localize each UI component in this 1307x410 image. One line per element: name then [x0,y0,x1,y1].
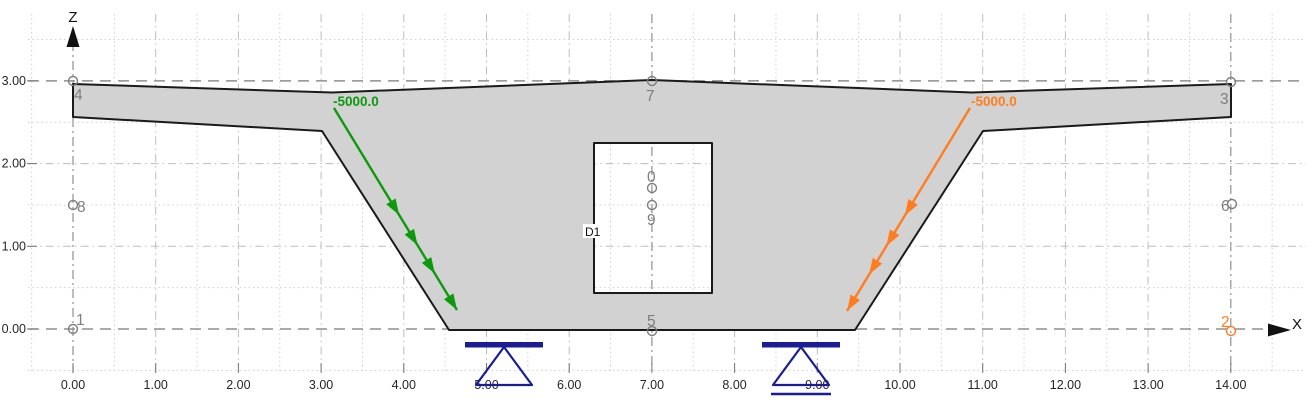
z-axis-label: Z [68,9,77,26]
x-tick-label: 13.00 [1132,378,1163,392]
node-number-label: 2 [1221,314,1230,331]
z-tick-label: 3.00 [2,74,26,88]
z-axis-arrow-icon [67,26,80,47]
model-viewport: 0.001.002.003.004.005.006.007.008.009.00… [0,0,1307,410]
node-3[interactable]: 3 [1220,78,1236,109]
x-tick-label: 12.00 [1050,378,1081,392]
model-canvas: 0.001.002.003.004.005.006.007.008.009.00… [0,0,1307,410]
x-tick-label: 7.00 [640,378,664,392]
node-number-label: 8 [77,199,86,216]
x-tick-label: 1.00 [144,378,168,392]
node-number-label: 6 [1221,198,1230,215]
node-number-label: 4 [74,87,83,104]
node-number-label: 7 [646,88,655,105]
x-axis-arrow-icon [1268,324,1291,337]
load-value-label: -5000.0 [333,94,379,109]
node-number-label: 0 [647,169,656,186]
x-tick-label: 3.00 [309,378,333,392]
node-6[interactable]: 6 [1221,198,1237,215]
node-number-label: 3 [1220,91,1229,108]
node-2[interactable]: 2 [1221,314,1236,336]
load-value-label: -5000.0 [971,94,1017,109]
node-8[interactable]: 8 [69,199,86,216]
node-number-label: 5 [647,313,656,330]
node-number-label: 9 [647,212,656,229]
x-tick-label: 8.00 [722,378,746,392]
x-tick-label: 14.00 [1215,378,1246,392]
opening-label[interactable]: D1 [585,225,601,239]
coordinate-axes: ZX [67,9,1303,337]
x-tick-label: 0.00 [61,378,85,392]
x-tick-label: 2.00 [226,378,250,392]
node-number-label: 1 [76,312,85,329]
x-tick-label: 6.00 [557,378,581,392]
x-tick-label: 10.00 [884,378,915,392]
x-tick-label: 11.00 [968,378,998,392]
x-tick-label: 4.00 [392,378,416,392]
z-tick-label: 1.00 [2,239,26,253]
node-1[interactable]: 1 [69,312,85,334]
x-axis-label: X [1292,316,1302,333]
z-tick-label: 0.00 [2,322,26,336]
z-tick-label: 2.00 [2,157,26,171]
